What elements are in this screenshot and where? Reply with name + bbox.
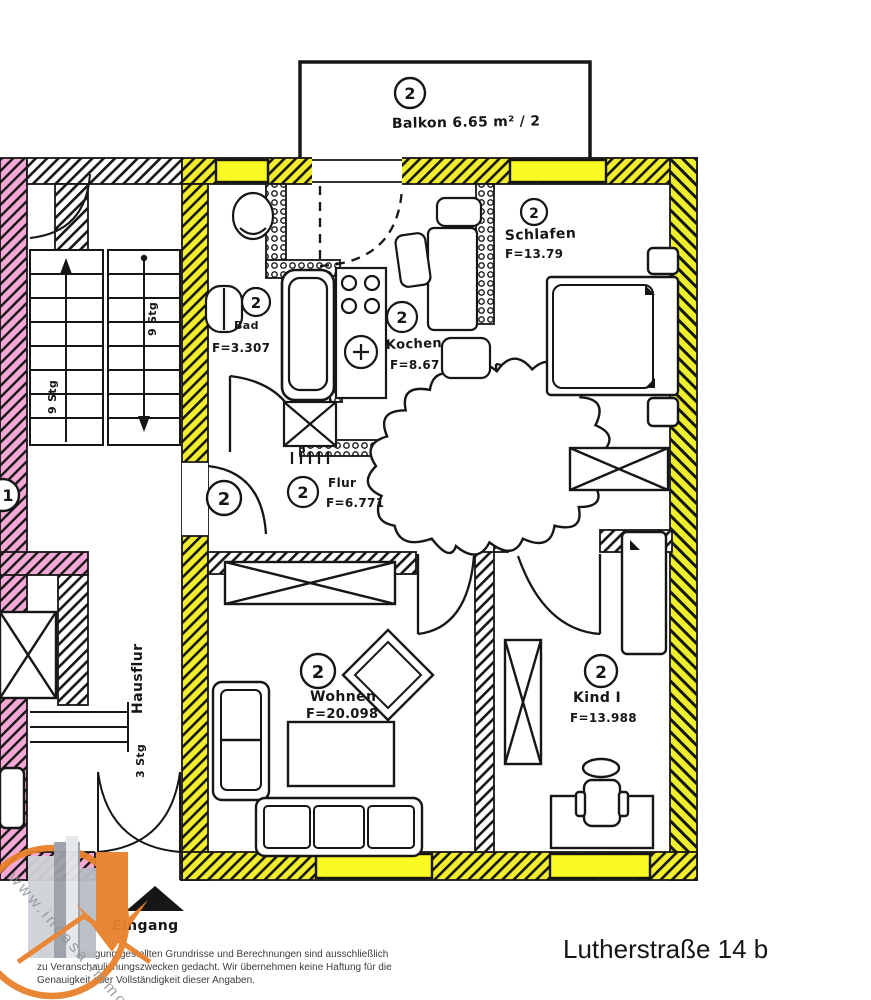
dim-stair-lower: 9 Stg <box>146 302 159 336</box>
window-schlafen <box>510 160 606 182</box>
area-bad: F=3.307 <box>212 341 270 355</box>
unit-badge-bad: 2 <box>251 294 261 312</box>
kitchen-chair-1 <box>437 198 481 226</box>
dim-hall: 3 Stg <box>134 744 147 778</box>
wall-neighbor-vert <box>58 575 88 705</box>
label-schlafen: Schlafen <box>505 226 577 244</box>
unit-badge-kind: 2 <box>595 663 607 683</box>
area-kind: F=13.988 <box>570 711 637 725</box>
floorplan-svg: 2 Balkon 6.65 m² / 2 <box>0 0 871 1000</box>
wall-neighbor-mid <box>0 552 88 575</box>
nightstand-2 <box>648 398 678 426</box>
door-arc-kind <box>518 556 600 634</box>
door-arc-wohnen <box>418 556 474 634</box>
coffee-table <box>288 722 394 786</box>
address-label: Lutherstraße 14 b <box>563 934 768 964</box>
disclaimer-line-3: Genauigkeit oder Vollständigkeit dieser … <box>37 975 255 986</box>
unit-badge-neighbor: 1 <box>2 486 13 505</box>
wardrobe-kind <box>505 640 541 764</box>
label-wohnen: Wohnen <box>310 689 376 705</box>
unit-badge-flur: 2 <box>297 483 308 502</box>
sofa <box>256 798 422 856</box>
wall-wohnen-kind <box>475 552 494 852</box>
balcony-label: Balkon 6.65 m² / 2 <box>392 113 541 132</box>
unit-badge-schlafen: 2 <box>529 206 539 222</box>
unit-badge-kochen: 2 <box>396 308 407 327</box>
wall-top-neighbor <box>27 158 182 184</box>
wardrobe-schlafen <box>570 448 668 490</box>
nightstand-1 <box>648 248 678 274</box>
kid-bed <box>622 532 666 654</box>
double-bed <box>547 277 678 395</box>
balcony: 2 Balkon 6.65 m² / 2 <box>300 62 590 162</box>
label-bad: Bad <box>234 319 259 332</box>
kitchen-chair-2 <box>395 232 432 288</box>
unit-badge-balcony-number: 2 <box>404 84 415 103</box>
label-flur: Flur <box>328 476 356 490</box>
dim-stair-upper: 9 Stg <box>46 380 59 414</box>
label-kind: Kind I <box>573 690 621 706</box>
shower <box>284 402 336 464</box>
wardrobe-neighbor <box>0 612 56 698</box>
window-wohnen <box>316 854 432 878</box>
window-bad <box>216 160 268 182</box>
entrance-arrow-icon <box>126 886 184 911</box>
label-hausflur: Hausflur <box>130 644 146 714</box>
label-kochen: Kochen <box>386 336 443 353</box>
toilet <box>233 193 273 239</box>
area-wohnen: F=20.098 <box>306 707 378 722</box>
unit-badge-entrance: 2 <box>218 489 231 510</box>
kitchen-chair-3 <box>442 338 490 378</box>
kitchen-table <box>428 228 477 330</box>
unit-badge-wohnen: 2 <box>312 662 325 683</box>
desk-chair <box>576 759 628 826</box>
area-kochen: F=8.67 <box>390 358 440 372</box>
window-kind <box>550 854 650 878</box>
area-schlafen: F=13.79 <box>505 247 563 261</box>
balcony-door-dashed <box>320 186 402 266</box>
floorplan-page: 2 Balkon 6.65 m² / 2 <box>0 0 871 1000</box>
area-flur: F=6.771 <box>326 496 384 510</box>
wardrobe-wohnen <box>225 562 395 604</box>
hausflur-details <box>30 702 180 852</box>
neighbor-furniture <box>0 768 24 828</box>
